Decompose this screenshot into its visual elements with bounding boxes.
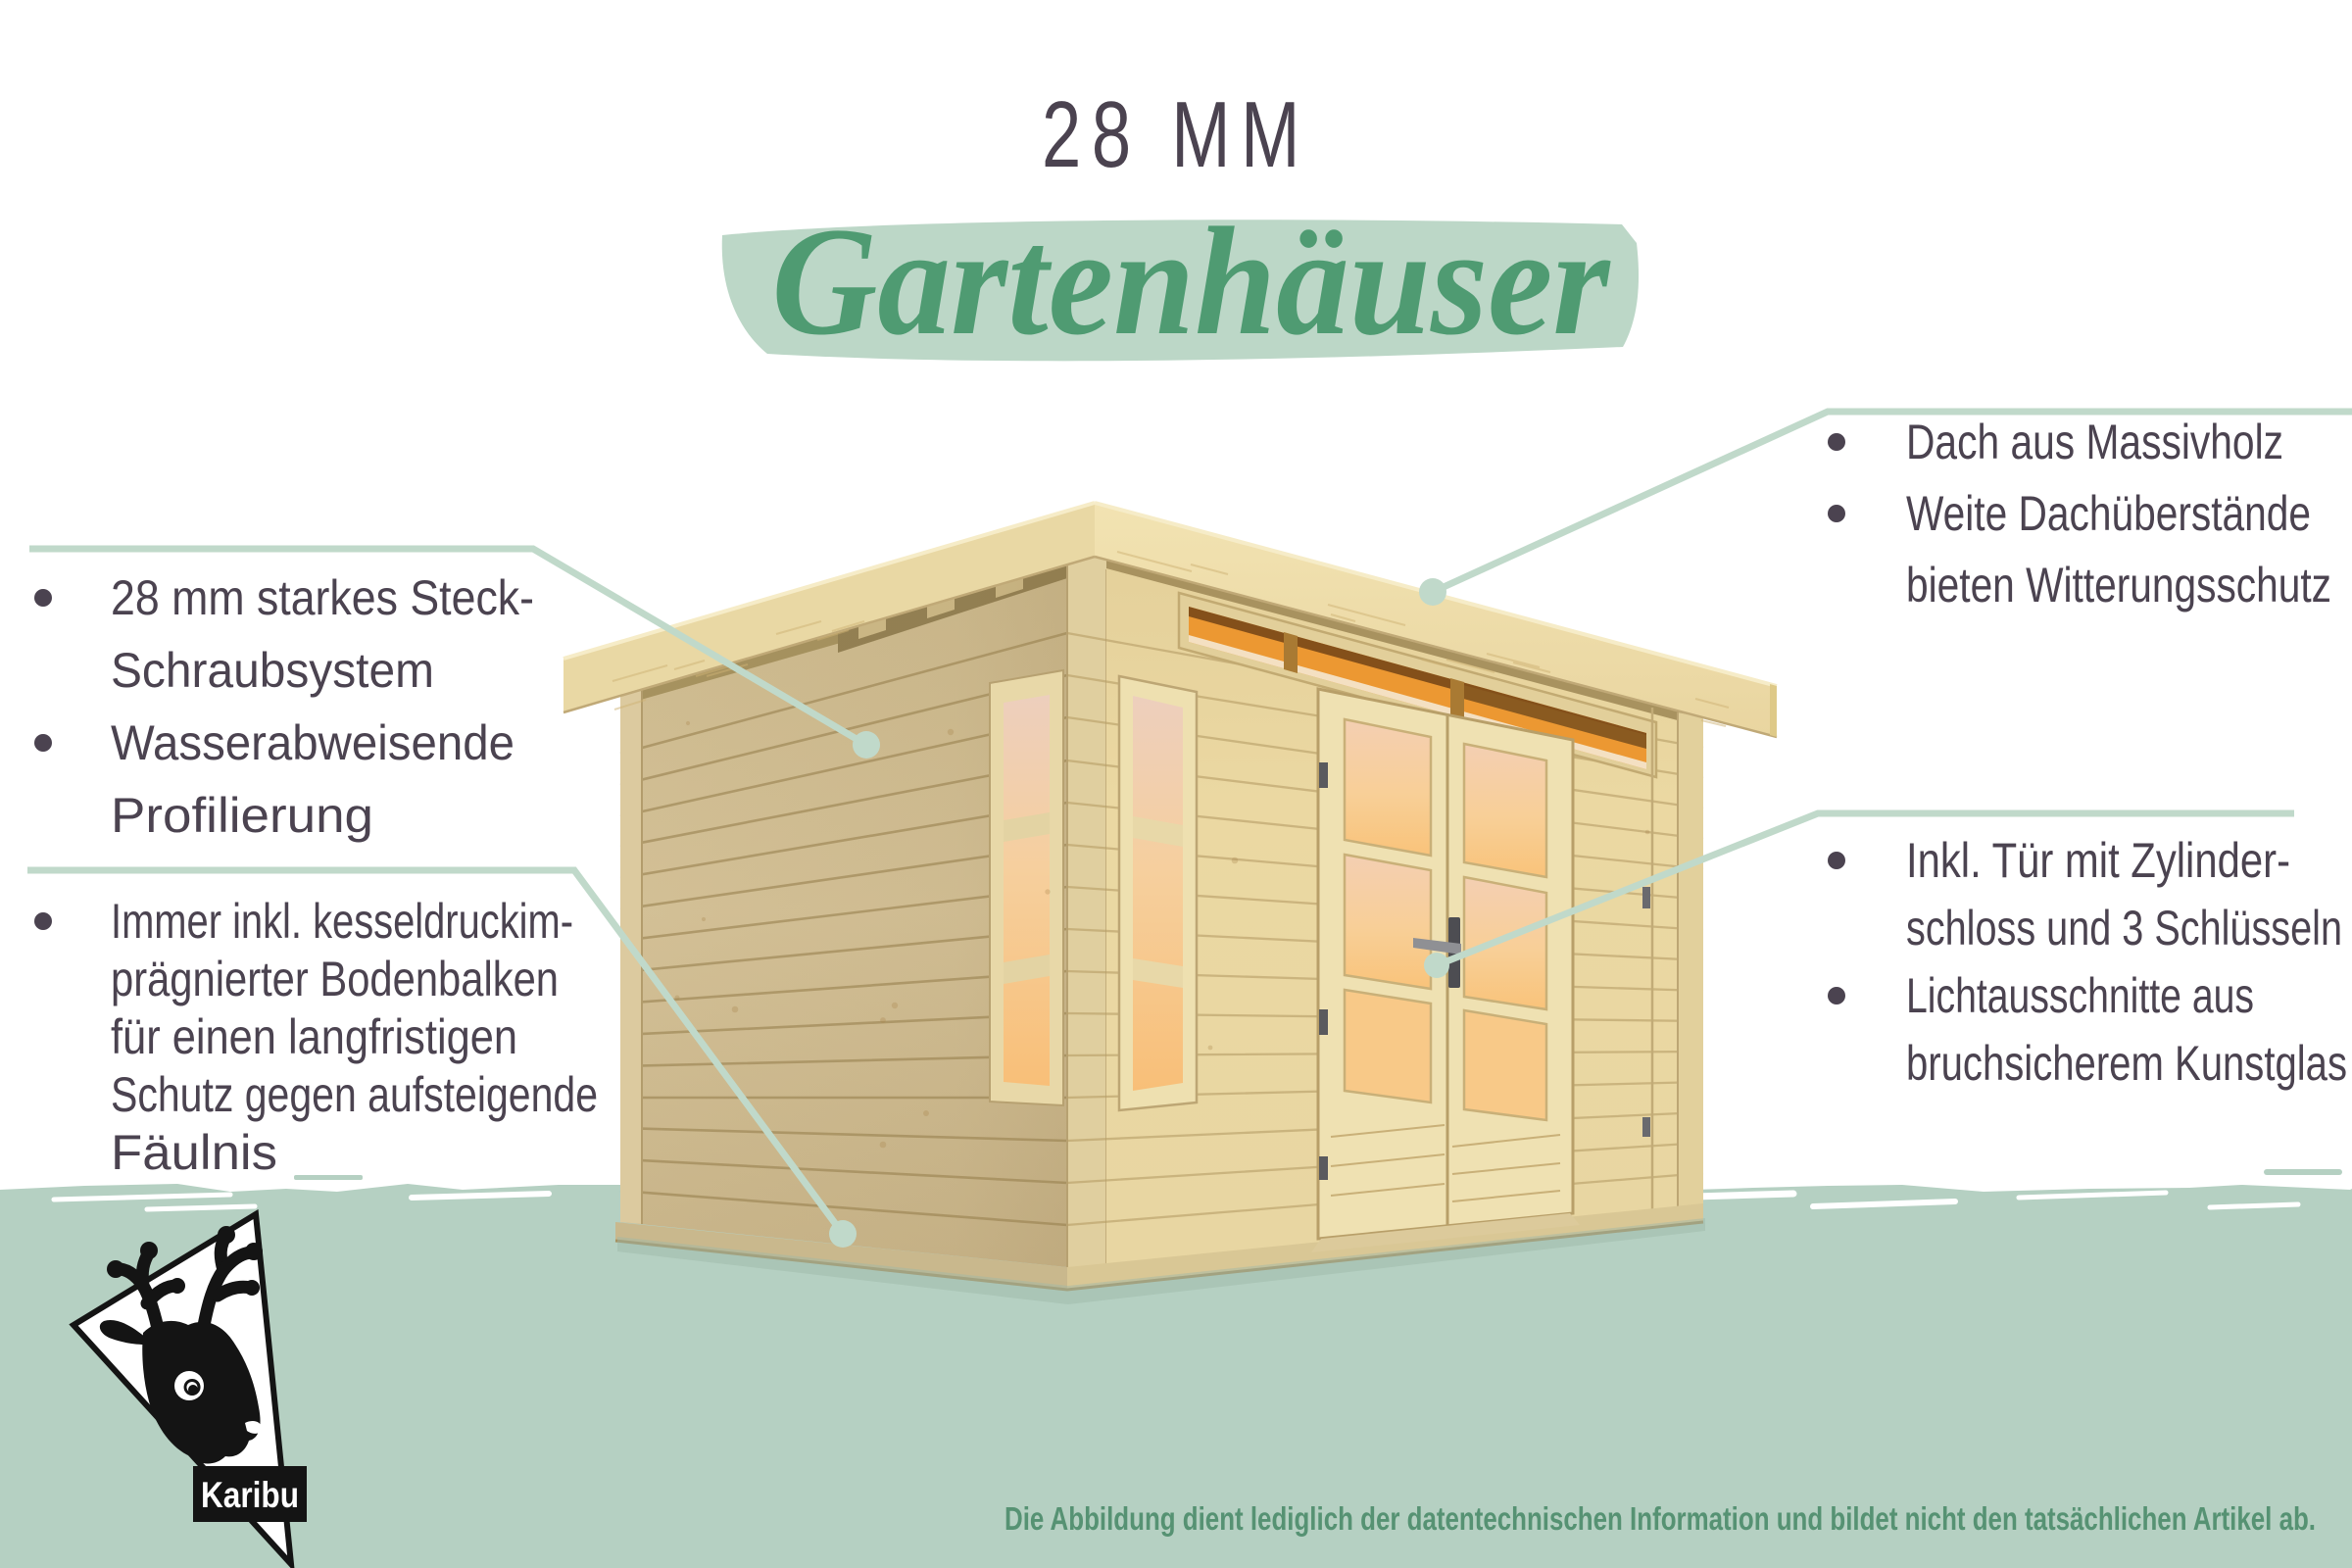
svg-text:Schraubsystem: Schraubsystem [111, 643, 434, 698]
svg-text:schloss und 3 Schlüsseln: schloss und 3 Schlüsseln [1906, 901, 2342, 955]
svg-text:Wasserabweisende: Wasserabweisende [111, 715, 514, 770]
svg-text:Weite Dachüberstände: Weite Dachüberstände [1906, 486, 2311, 541]
svg-text:Immer inkl. kesseldruckim-: Immer inkl. kesseldruckim- [111, 894, 573, 949]
svg-text:Schutz gegen aufsteigende: Schutz gegen aufsteigende [111, 1067, 598, 1122]
svg-text:Lichtausschnitte aus: Lichtausschnitte aus [1906, 968, 2254, 1023]
svg-text:bieten Witterungsschutz: bieten Witterungsschutz [1906, 558, 2331, 612]
svg-text:bruchsicherem Kunstglas: bruchsicherem Kunstglas [1906, 1036, 2347, 1091]
svg-text:Fäulnis: Fäulnis [111, 1125, 277, 1180]
svg-text:Karibu: Karibu [201, 1475, 299, 1515]
svg-text:28 mm starkes Steck-: 28 mm starkes Steck- [111, 570, 534, 625]
svg-text:28 MM: 28 MM [1042, 82, 1310, 187]
svg-text:Die Abbildung dient lediglich: Die Abbildung dient lediglich der datent… [1004, 1500, 2316, 1537]
svg-text:prägnierter Bodenbalken: prägnierter Bodenbalken [111, 952, 559, 1006]
svg-text:für einen langfristigen: für einen langfristigen [111, 1009, 517, 1064]
svg-text:Inkl. Tür mit Zylinder-: Inkl. Tür mit Zylinder- [1906, 833, 2290, 888]
svg-text:Profilierung: Profilierung [111, 788, 373, 843]
svg-text:Dach aus Massivholz: Dach aus Massivholz [1906, 415, 2283, 469]
svg-text:Gartenhäuser: Gartenhäuser [772, 196, 1611, 367]
